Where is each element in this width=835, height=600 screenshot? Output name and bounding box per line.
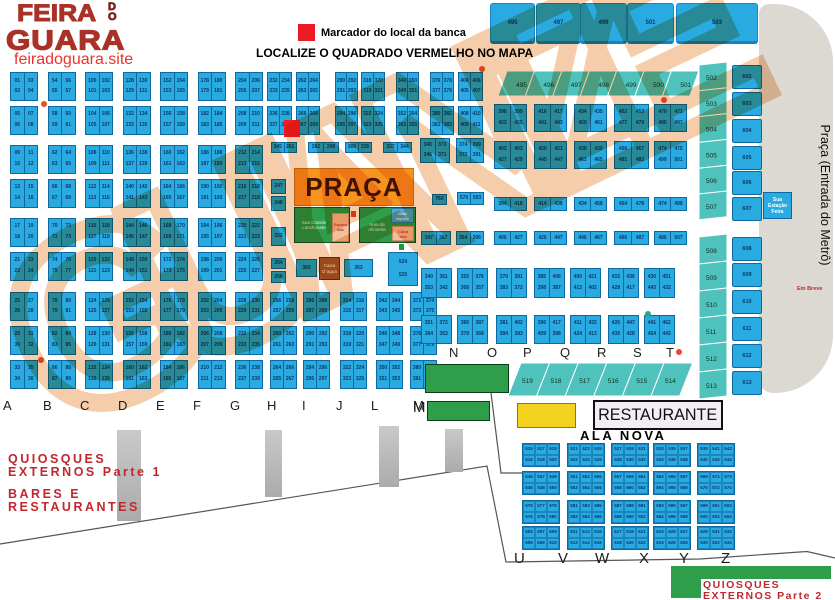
svg-text:GUIANIZE: GUIANIZE	[0, 0, 793, 478]
